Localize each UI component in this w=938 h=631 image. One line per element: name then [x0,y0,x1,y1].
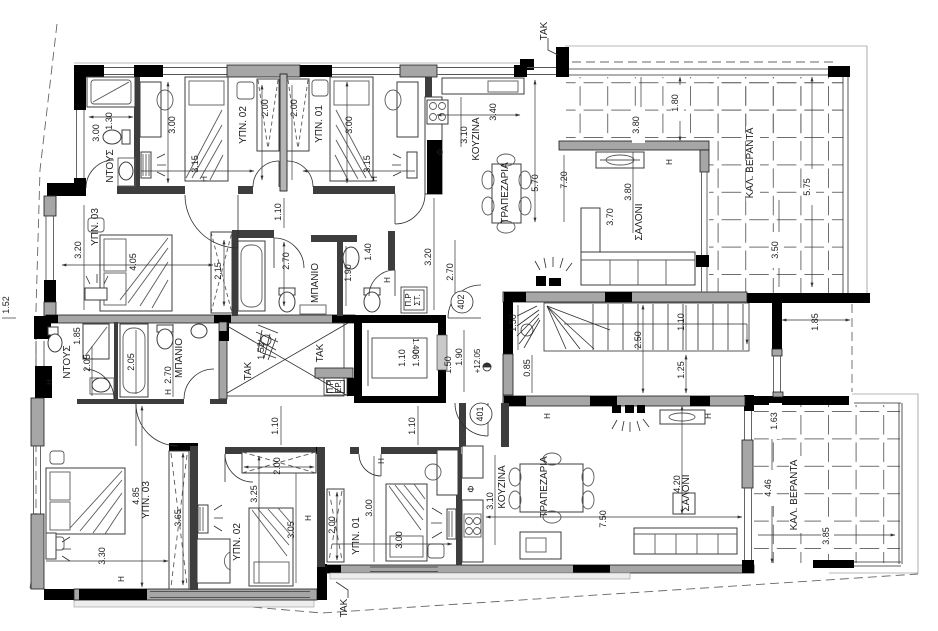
svg-text:ΜΠΑΝΙΟ: ΜΠΑΝΙΟ [174,338,185,378]
svg-text:1.80: 1.80 [670,94,680,112]
svg-text:3.80: 3.80 [623,183,633,201]
svg-text:1.30: 1.30 [104,112,114,130]
svg-text:2.50: 2.50 [633,331,643,349]
svg-text:1.10: 1.10 [407,417,417,435]
svg-text:3.40: 3.40 [488,103,498,121]
svg-text:ΣΤ.: ΣΤ. [413,294,422,305]
svg-text:5.75: 5.75 [802,178,812,196]
svg-text:2.05: 2.05 [126,353,136,371]
svg-text:1.85: 1.85 [72,327,82,345]
svg-text:3.00: 3.00 [344,116,354,134]
svg-text:ΥΠΝ. 01: ΥΠΝ. 01 [314,105,325,143]
svg-text:ΚΑΛ. ΒΕΡΑΝΤΑ: ΚΑΛ. ΒΕΡΑΝΤΑ [789,459,800,530]
svg-text:ΚΟΥΖΙΝΑ: ΚΟΥΖΙΝΑ [497,465,508,509]
svg-text:ΥΠΝ. 03: ΥΠΝ. 03 [90,208,101,246]
svg-text:ΥΠΝ. 02: ΥΠΝ. 02 [238,106,249,144]
svg-text:ΣΑΛΟΝΙ: ΣΑΛΟΝΙ [634,203,645,240]
svg-text:1.10: 1.10 [676,313,686,331]
svg-text:1.40: 1.40 [363,243,373,261]
svg-text:H: H [164,389,173,395]
svg-text:ΤΑΚ: ΤΑΚ [339,598,350,617]
svg-text:3.50: 3.50 [770,241,780,259]
svg-text:2.00: 2.00 [289,99,299,117]
svg-text:3.20: 3.20 [73,241,83,259]
svg-text:Φ: Φ [466,485,476,492]
svg-text:7.50: 7.50 [598,510,608,528]
svg-text:ΤΑΚ: ΤΑΚ [243,361,254,380]
svg-text:5.70: 5.70 [530,174,540,192]
svg-text:ΥΠΝ. 01: ΥΠΝ. 01 [351,517,362,555]
svg-text:3.85: 3.85 [821,527,831,545]
svg-text:1.10: 1.10 [273,203,283,221]
svg-text:ΤΡΑΠΕΖΑΡΙΑ: ΤΡΑΠΕΖΑΡΙΑ [539,456,550,518]
svg-text:1.25: 1.25 [676,361,686,379]
svg-text:H: H [200,176,209,182]
svg-text:ΥΠΝ. 02: ΥΠΝ. 02 [232,523,243,561]
svg-text:2.15: 2.15 [213,262,223,280]
svg-text:3.00: 3.00 [167,116,177,134]
svg-text:7.20: 7.20 [559,171,569,189]
svg-text:3.10: 3.10 [459,126,469,144]
svg-text:3.05: 3.05 [286,521,296,539]
svg-text:ΥΠΝ. 03: ΥΠΝ. 03 [141,481,152,519]
svg-text:ΤΡΑΠΕΖΑΡΙΑ: ΤΡΑΠΕΖΑΡΙΑ [500,162,511,224]
svg-text:2.05: 2.05 [82,354,92,372]
svg-text:ΚΑΛ. ΒΕΡΑΝΤΑ: ΚΑΛ. ΒΕΡΑΝΤΑ [745,127,756,198]
svg-text:3.70: 3.70 [605,208,615,226]
svg-text:2.70: 2.70 [163,366,173,384]
svg-text:H: H [45,379,54,385]
svg-text:2.00: 2.00 [260,99,270,117]
svg-text:H: H [704,413,713,419]
svg-text:1.10: 1.10 [397,349,407,367]
svg-text:H: H [370,176,379,182]
svg-text:4.85: 4.85 [131,487,141,505]
svg-text:2.70: 2.70 [445,263,455,281]
svg-text:H: H [377,458,386,464]
svg-text:1.40: 1.40 [411,338,420,354]
svg-text:3.30: 3.30 [97,547,107,565]
svg-text:H: H [383,277,392,283]
svg-text:1.90: 1.90 [343,264,353,282]
svg-text:1.50: 1.50 [508,314,518,332]
svg-text:3.10: 3.10 [485,492,495,510]
svg-text:2.00: 2.00 [272,457,282,475]
svg-text:2.70: 2.70 [281,252,291,270]
svg-text:4.20: 4.20 [672,475,682,493]
svg-text:3.15: 3.15 [362,155,372,173]
svg-text:3.00: 3.00 [364,499,374,517]
svg-text:3.00: 3.00 [394,531,404,549]
svg-text:Π.Ρ: Π.Ρ [404,293,413,306]
svg-text:ΝΤΟΥΣ: ΝΤΟΥΣ [62,345,73,378]
svg-text:ΚΟΥΖΙΝΑ: ΚΟΥΖΙΝΑ [471,117,482,161]
svg-text:ΣΑΛΟΝΙ: ΣΑΛΟΝΙ [681,474,692,511]
svg-text:ΤΑΚ: ΤΑΚ [539,21,550,40]
svg-text:2.00: 2.00 [327,516,337,534]
svg-text:3.65: 3.65 [173,509,183,527]
svg-text:H: H [304,515,313,521]
svg-text:3.20: 3.20 [423,248,433,266]
svg-text:1.52: 1.52 [256,342,266,360]
svg-text:3.25: 3.25 [249,485,259,503]
svg-text:H: H [665,159,674,165]
svg-text:ΜΠΑΝΙΟ: ΜΠΑΝΙΟ [310,263,321,303]
svg-text:401: 401 [475,406,485,421]
svg-text:1.50: 1.50 [443,356,453,374]
svg-text:402: 402 [456,294,466,309]
svg-text:H: H [543,413,552,419]
svg-text:1.52: 1.52 [1,296,11,314]
svg-text:ΤΑΚ: ΤΑΚ [315,343,326,362]
svg-text:4.46: 4.46 [763,479,773,497]
svg-text:4.05: 4.05 [128,253,138,271]
svg-text:1.10: 1.10 [270,417,280,435]
svg-text:ΕΡ.: ΕΡ. [334,381,343,393]
svg-text:1.90: 1.90 [454,348,464,366]
svg-text:1.85: 1.85 [810,313,820,331]
svg-text:Φ: Φ [435,148,445,155]
svg-text:ΝΤΟΥΣ: ΝΤΟΥΣ [105,149,116,182]
svg-text:+12.05: +12.05 [473,348,482,373]
svg-text:3.15: 3.15 [190,155,200,173]
svg-text:1.63: 1.63 [769,412,779,430]
svg-text:3.80: 3.80 [631,116,641,134]
svg-text:3.00: 3.00 [91,124,101,142]
svg-text:0.85: 0.85 [522,359,532,377]
svg-text:H: H [117,576,126,582]
